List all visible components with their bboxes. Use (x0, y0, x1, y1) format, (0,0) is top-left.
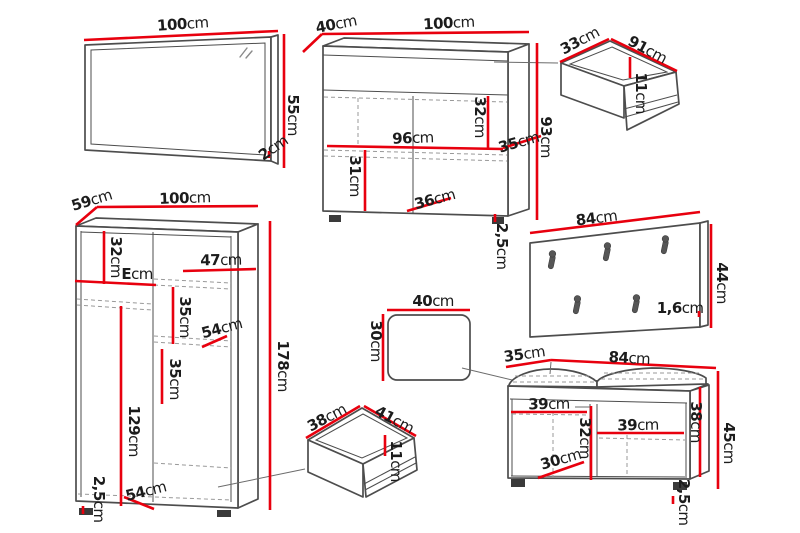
drawer-large-height-label: 11cm (632, 72, 650, 113)
wardrobe-shelf-label: Ecm (121, 265, 152, 283)
diagram-canvas: 100cm 55cm 2cm 40cm 100cm 93cm 32cm 96cm… (0, 0, 800, 533)
wardrobe-plinth-label: 2,5cm (90, 476, 108, 523)
wardrobe-foot (217, 510, 231, 517)
mirror-width-label: 100cm (156, 13, 208, 35)
drawer-small-diagram: 38cm 41cm 11cm (304, 400, 417, 497)
wardrobe-height-label: 178cm (274, 340, 292, 391)
bench-left-compartment-label: 39cm (528, 395, 570, 414)
seat-cushion-panel (388, 315, 470, 380)
chest-drawer-height-label: 32cm (471, 96, 489, 137)
seat-cushion-width-label: 40cm (412, 292, 453, 310)
chest-plinth-label: 2,5cm (493, 223, 511, 270)
wardrobe-width-label: 100cm (159, 188, 211, 208)
bench-right-inner-height-label: 38cm (687, 401, 705, 442)
wardrobe-door-height-label: 129cm (125, 405, 143, 456)
bench-cushion-left (509, 369, 597, 387)
bench-plinth-label: 2,5cm (675, 479, 693, 526)
chest-width-label: 100cm (423, 13, 475, 34)
drawer-small-height-label: 11cm (387, 440, 405, 481)
drawer-large-diagram: 33cm 91cm 11cm (557, 23, 679, 130)
chest-depth-line (303, 34, 322, 52)
mirror-frame (85, 37, 271, 161)
chest-diagram: 40cm 100cm 93cm 32cm 96cm 35cm 31cm 36cm… (303, 11, 558, 269)
chest-inner-width-label: 96cm (392, 128, 434, 147)
coat-panel-diagram: 84cm 44cm 1,6cm (530, 207, 731, 337)
wardrobe-diagram: 59cm 100cm 32cm Ecm 47cm 35cm 54cm 35cm … (69, 186, 305, 523)
coat-panel-width-label: 84cm (575, 207, 618, 230)
coat-panel-height-label: 44cm (713, 262, 731, 303)
coat-panel-board (530, 223, 700, 337)
bench-cushion-right (597, 368, 706, 387)
seat-cushion-diagram: 40cm 30cm (367, 292, 512, 381)
mirror-height-label: 55cm (284, 94, 302, 135)
bench-width-label: 84cm (608, 348, 650, 368)
coat-panel-thickness-label: 1,6cm (657, 299, 704, 317)
bench-diagram: 35cm 84cm 39cm 39cm 32cm 30cm 38cm 45cm … (503, 342, 738, 525)
bench-foot (511, 479, 525, 487)
chest-height-label: 93cm (537, 116, 555, 157)
furniture-dimensions-diagram: 100cm 55cm 2cm 40cm 100cm 93cm 32cm 96cm… (0, 0, 800, 533)
bench-right-compartment-label: 39cm (617, 416, 659, 435)
chest-foot (329, 215, 341, 222)
bench-height-label: 45cm (720, 422, 738, 463)
mirror-diagram: 100cm 55cm 2cm (84, 13, 302, 168)
wardrobe-gap-upper-label: 35cm (176, 296, 194, 337)
wardrobe-shelf-width-label: 47cm (200, 251, 242, 270)
wardrobe-gap-lower-label: 35cm (166, 358, 184, 399)
chest-shelf-height-label: 31cm (346, 155, 364, 196)
seat-cushion-height-label: 30cm (367, 320, 385, 361)
